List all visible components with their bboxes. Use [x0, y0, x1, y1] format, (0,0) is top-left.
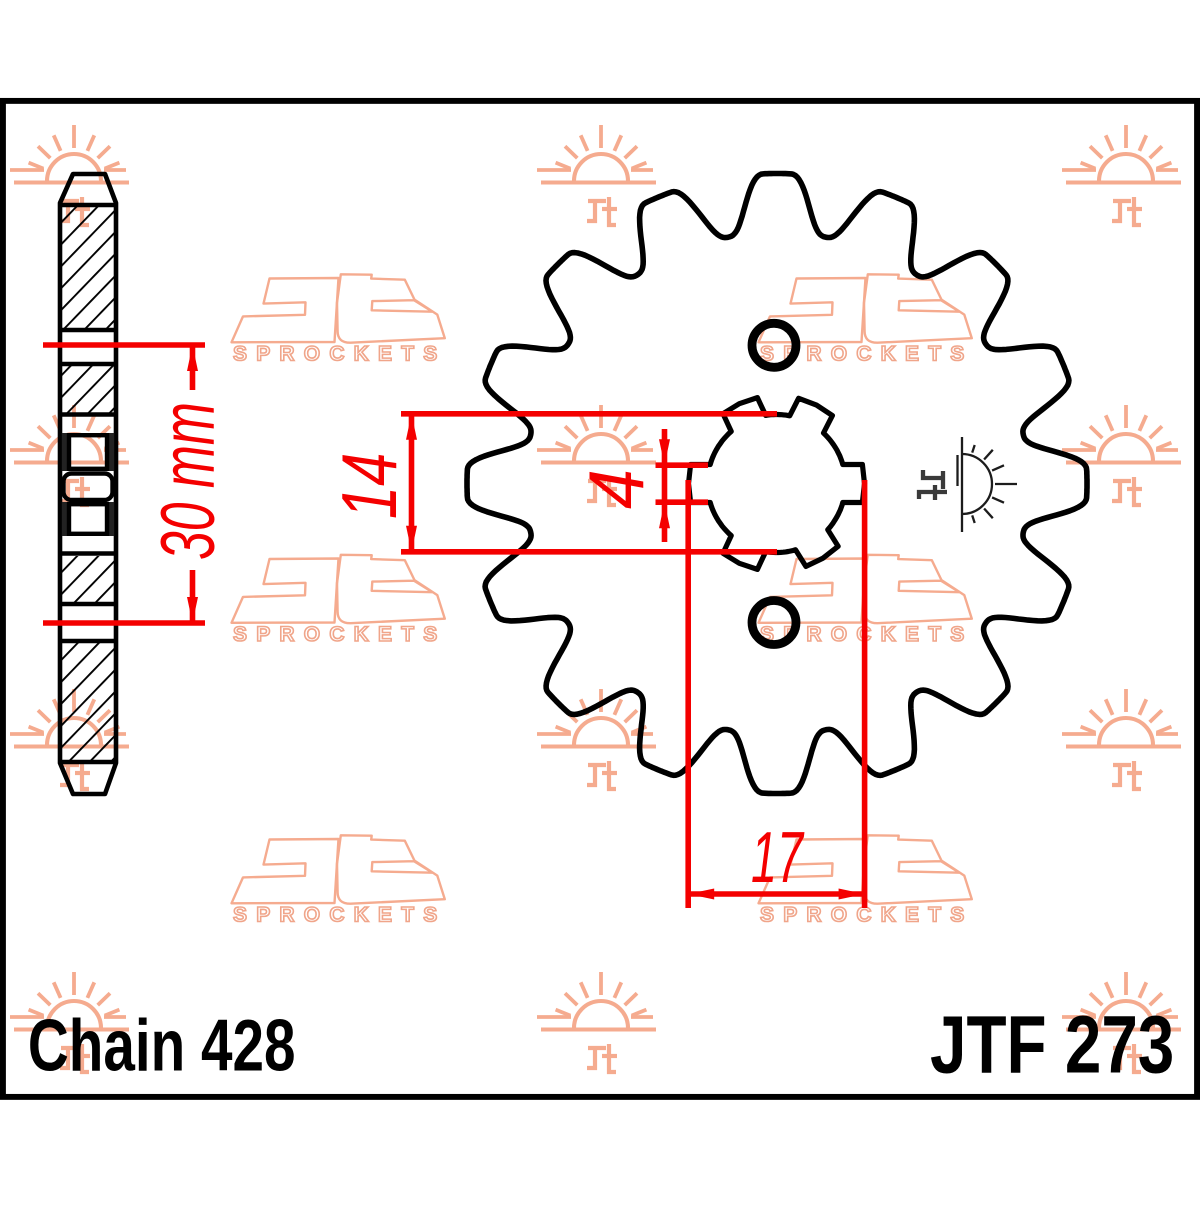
svg-text:SPROCKETS: SPROCKETS [233, 343, 447, 366]
svg-text:14: 14 [325, 453, 413, 519]
svg-text:4: 4 [572, 469, 659, 509]
svg-text:SPROCKETS: SPROCKETS [233, 623, 447, 646]
svg-text:SPROCKETS: SPROCKETS [233, 904, 447, 927]
svg-text:Chain 428: Chain 428 [28, 1005, 296, 1087]
svg-text:JTF 273: JTF 273 [930, 999, 1174, 1091]
svg-text:30 mm: 30 mm [145, 402, 230, 560]
svg-text:17: 17 [751, 817, 805, 898]
